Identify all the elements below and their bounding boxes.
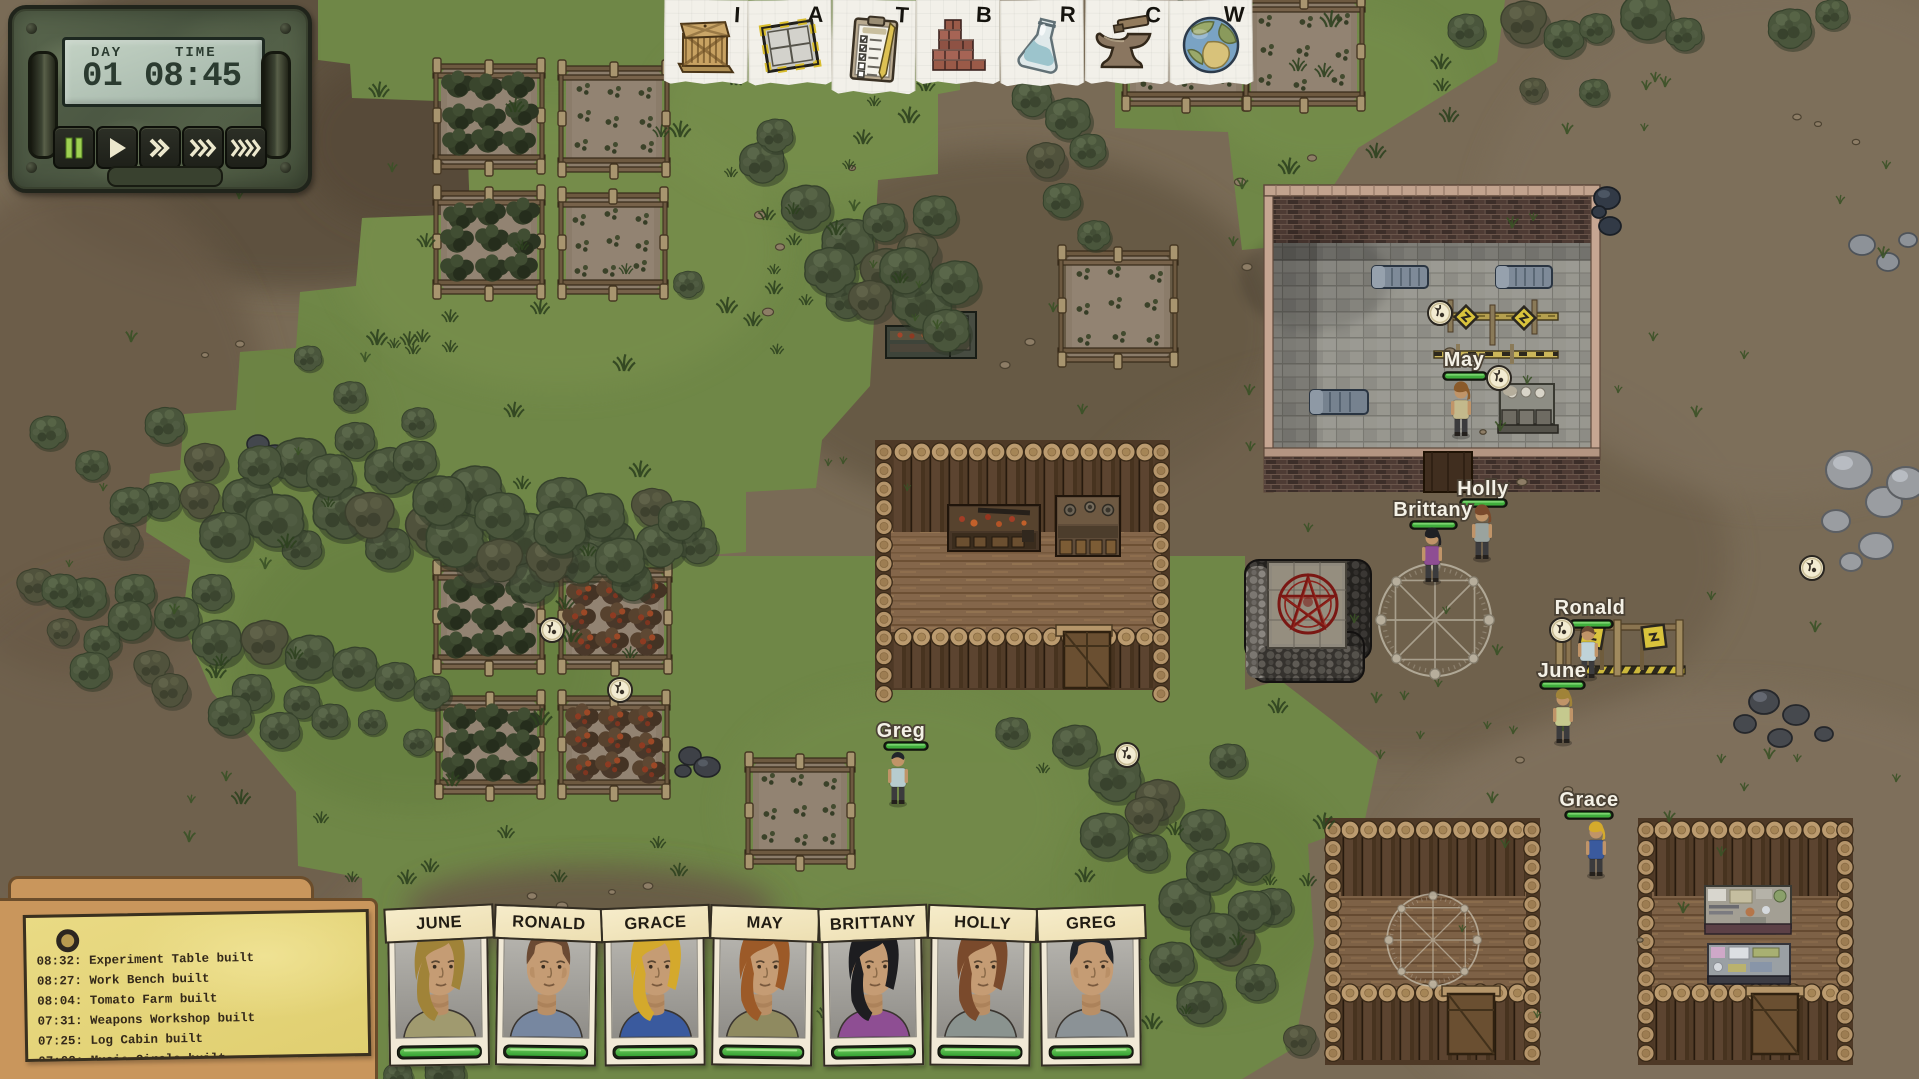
svg-text:Greg: Greg	[877, 720, 926, 742]
svg-text:May: May	[1444, 349, 1485, 371]
svg-text:June: June	[1538, 660, 1587, 682]
svg-text:Ronald: Ronald	[1555, 597, 1626, 619]
svg-text:Grace: Grace	[1559, 789, 1618, 811]
svg-text:Brittany: Brittany	[1393, 499, 1473, 521]
svg-text:Holly: Holly	[1457, 478, 1509, 500]
